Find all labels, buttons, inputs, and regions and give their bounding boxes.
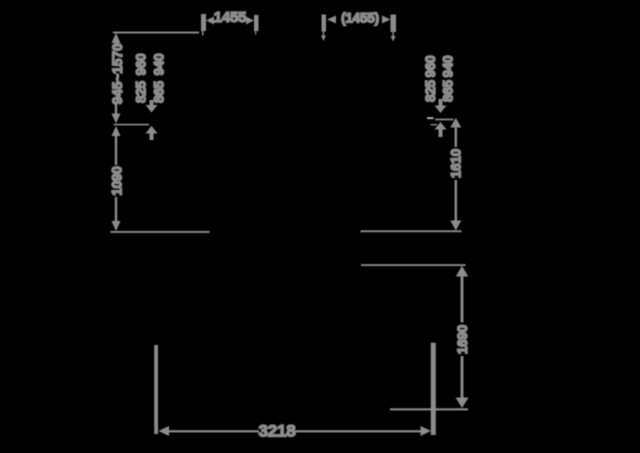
svg-text:1455: 1455 xyxy=(214,9,247,26)
svg-text:865: 865 xyxy=(152,80,167,103)
svg-text:960: 960 xyxy=(423,56,438,78)
svg-text:940: 940 xyxy=(441,56,456,78)
svg-text:(1455): (1455) xyxy=(341,11,379,26)
svg-text:825: 825 xyxy=(134,80,149,103)
svg-text:1090: 1090 xyxy=(110,166,125,195)
svg-text:1690: 1690 xyxy=(455,325,470,354)
svg-text:865: 865 xyxy=(441,79,456,102)
svg-text:3218: 3218 xyxy=(258,422,295,441)
svg-text:1610: 1610 xyxy=(449,149,464,178)
svg-text:940: 940 xyxy=(152,54,167,76)
svg-text:960: 960 xyxy=(134,54,149,76)
svg-text:945~1570: 945~1570 xyxy=(109,43,125,104)
svg-text:825: 825 xyxy=(423,79,438,102)
